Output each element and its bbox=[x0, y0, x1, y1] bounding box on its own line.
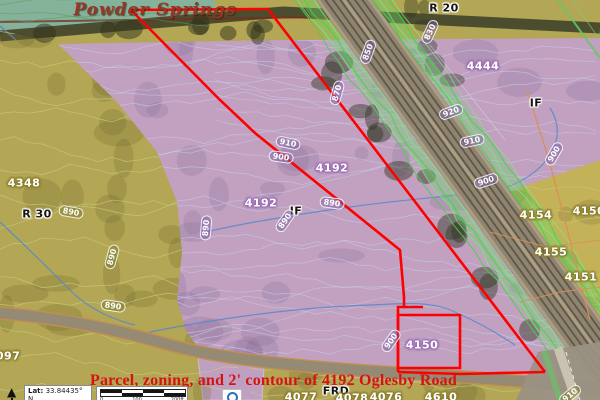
contour-elevation-label: 890 bbox=[100, 299, 126, 313]
contour-elevation-label: 870 bbox=[328, 80, 345, 107]
map-logo bbox=[222, 389, 242, 400]
contour-elevation-label: 910 bbox=[459, 133, 485, 149]
parcel-number-label: 4150 bbox=[406, 339, 439, 352]
parcel-number-label: 4150 bbox=[573, 205, 600, 218]
contour-elevation-label: 890 bbox=[273, 208, 296, 235]
parcel-number-label: 4192 bbox=[245, 197, 278, 210]
parcel-number-label: 4610 bbox=[425, 391, 458, 400]
zoning-label: R 30 bbox=[22, 208, 52, 221]
contour-elevation-label: 890 bbox=[58, 204, 84, 219]
contour-elevation-label: 890 bbox=[103, 244, 120, 271]
gis-map-viewer[interactable]: Powder Springs R 20R 30IFIFFRD4348444441… bbox=[0, 0, 600, 400]
contour-elevation-label: 890 bbox=[319, 196, 345, 210]
contour-elevation-label: 890 bbox=[199, 215, 212, 241]
parcel-number-label: 4151 bbox=[565, 271, 598, 284]
contour-elevation-label: 920 bbox=[438, 103, 465, 122]
coordinate-readout: Lat: 33.84435° N Lon: 84. bbox=[24, 385, 92, 400]
map-labels-layer: Powder Springs R 20R 30IFIFFRD4348444441… bbox=[0, 0, 600, 400]
parcel-number-label: 4154 bbox=[520, 209, 553, 222]
parcel-number-label: 4078 bbox=[336, 392, 369, 400]
parcel-number-label: 4076 bbox=[370, 391, 403, 400]
scale-bar: 0 100 200ft bbox=[96, 386, 188, 400]
north-arrow-icon: ▲ bbox=[7, 386, 16, 400]
city-label: Powder Springs bbox=[73, 0, 236, 20]
parcel-number-label: 4077 bbox=[285, 391, 318, 400]
contour-elevation-label: 900 bbox=[543, 141, 565, 168]
zoning-label: IF bbox=[530, 97, 543, 110]
zoning-label: R 20 bbox=[429, 2, 459, 15]
contour-elevation-label: 900 bbox=[379, 328, 402, 355]
contour-elevation-label: 900 bbox=[268, 150, 294, 164]
parcel-number-label: 4192 bbox=[316, 162, 349, 175]
lat-label: Lat: bbox=[28, 387, 43, 395]
contour-elevation-label: 850 bbox=[359, 39, 378, 66]
parcel-number-label: 4348 bbox=[8, 177, 41, 190]
contour-elevation-label: 910 bbox=[557, 383, 583, 400]
parcel-number-label: 4155 bbox=[535, 246, 568, 259]
contour-elevation-label: 910 bbox=[275, 135, 301, 151]
contour-elevation-label: 830 bbox=[420, 18, 440, 45]
parcel-number-label: 4444 bbox=[467, 60, 500, 73]
parcel-number-label: 4097 bbox=[0, 350, 20, 363]
contour-elevation-label: 900 bbox=[473, 172, 500, 190]
